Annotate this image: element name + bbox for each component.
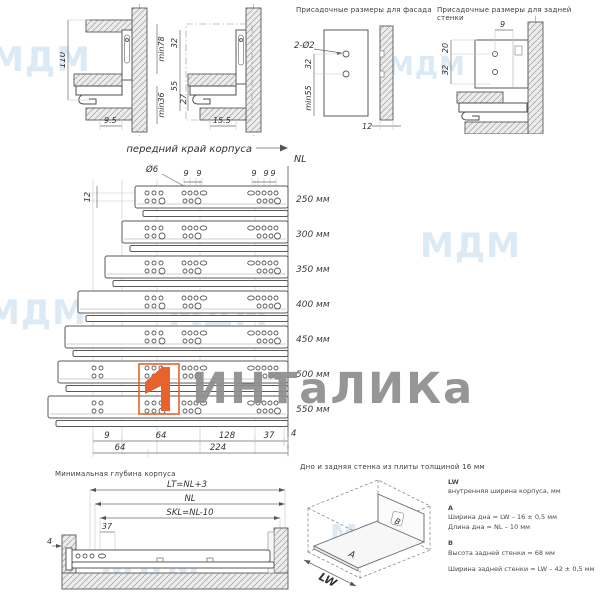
slide-row: 550 мм (48, 396, 330, 427)
min-depth-title: Минимальная глубина корпуса (55, 470, 176, 478)
facade-holes-label: 2-Ø2 (294, 40, 315, 51)
dim-32: 32 (441, 65, 450, 75)
legend-lw-desc: внутренняя ширина корпуса, мм (448, 487, 600, 496)
dim-64: 64 (156, 431, 167, 441)
slide-row: 450 мм (65, 326, 330, 357)
dim-64: 64 (115, 443, 126, 453)
dim-9: 9 (263, 169, 268, 178)
facade-drill-title: Присадочные размеры для фасада (296, 6, 432, 14)
dim-110: 110 (60, 52, 68, 68)
dim-37: 37 (264, 431, 275, 441)
facade-drill-view: 2-Ø2 32 min55 12 (292, 16, 437, 134)
legend-b-line: Высота задней стенки = 68 мм (448, 549, 600, 558)
legend-a-line: Ширина дна = LW – 16 ± 0,5 мм (448, 513, 600, 522)
dim-9-5: 9.5 (104, 116, 117, 125)
back-drill-view: 9 20 32 (435, 16, 597, 134)
slide-length-label: 550 мм (296, 405, 330, 415)
dim-12: 12 (362, 122, 372, 131)
front-edge-label: передний край корпуса (126, 144, 252, 155)
dim-min55: min55 (304, 85, 313, 110)
dim-9: 9 (183, 169, 188, 178)
dim-224: 224 (210, 443, 226, 453)
slide-rows: 250 мм300 мм350 мм400 мм450 мм500 мм550 … (48, 186, 330, 427)
dim-nl: NL (184, 494, 195, 504)
dim-12: 12 (83, 192, 92, 202)
brand-logo-icon (137, 362, 183, 416)
slide-row: 500 мм (58, 361, 330, 392)
dim-15-5: 15.5 (213, 116, 231, 125)
dim-20: 20 (441, 43, 450, 53)
catalog-sheet: МДМ МДМ МДМ МДМ МДМ МДМ МДМ (0, 0, 600, 600)
hole-diameter-label: Ø6 (145, 164, 159, 175)
dim-9: 9 (500, 20, 505, 29)
dim-4: 4 (291, 429, 296, 439)
side-view-mounted: 110 min78 min36 9.5 (60, 4, 166, 136)
dim-skl: SKL=NL-10 (166, 508, 213, 518)
dim-min78: min78 (157, 36, 166, 61)
lw-dim-label: LW (317, 570, 340, 590)
slide-length-label: 500 мм (296, 370, 330, 380)
dim-9: 9 (104, 431, 109, 441)
slide-row: 350 мм (105, 256, 330, 287)
dim-9: 9 (270, 169, 275, 178)
side-view-dimensions: 32 55 27 15.5 (170, 4, 261, 136)
dim-32: 32 (304, 59, 313, 69)
slide-length-label: 250 мм (296, 195, 330, 205)
slide-row: 400 мм (78, 291, 330, 322)
legend-lw-head: LW (448, 478, 600, 487)
side-mount-views: 110 min78 min36 9.5 32 55 (60, 4, 285, 136)
dim-9: 9 (251, 169, 256, 178)
dim-4: 4 (47, 537, 52, 546)
legend-a-head: A (448, 504, 600, 513)
dim-9: 9 (196, 169, 201, 178)
slide-length-label: 350 мм (296, 265, 330, 275)
legend-b-head: B (448, 539, 600, 548)
slide-length-label: 400 мм (296, 300, 330, 310)
dim-min36: min36 (157, 92, 166, 117)
min-depth-view: LT=NL+3 NL SKL=NL-10 37 4 (42, 480, 294, 598)
box-panel-iso-view: A B LW (300, 476, 442, 598)
slide-row: 250 мм (135, 186, 330, 217)
panel-legend: LW внутренняя ширина корпуса, мм A Ширин… (448, 478, 600, 574)
dim-55: 55 (170, 81, 179, 91)
slide-length-label: 450 мм (296, 335, 330, 345)
legend-a-line: Длина дна = NL – 10 мм (448, 523, 600, 532)
box-panel-title: Дно и задняя стенка из плиты толщиной 16… (300, 463, 485, 471)
legend-b-line: Ширина задней стенки = LW – 42 ± 0,5 мм (448, 565, 600, 574)
slide-row: 300 мм (122, 221, 330, 252)
dim-128: 128 (219, 431, 236, 441)
dim-37: 37 (102, 522, 113, 531)
nl-label: NL (294, 154, 306, 165)
dim-lt: LT=NL+3 (167, 480, 207, 490)
slide-lengths-diagram: передний край корпуса NL Ø6 9 9 9 9 9 12… (0, 138, 600, 468)
dim-32: 32 (170, 38, 179, 48)
slide-length-label: 300 мм (296, 230, 330, 240)
dim-27: 27 (179, 93, 188, 104)
